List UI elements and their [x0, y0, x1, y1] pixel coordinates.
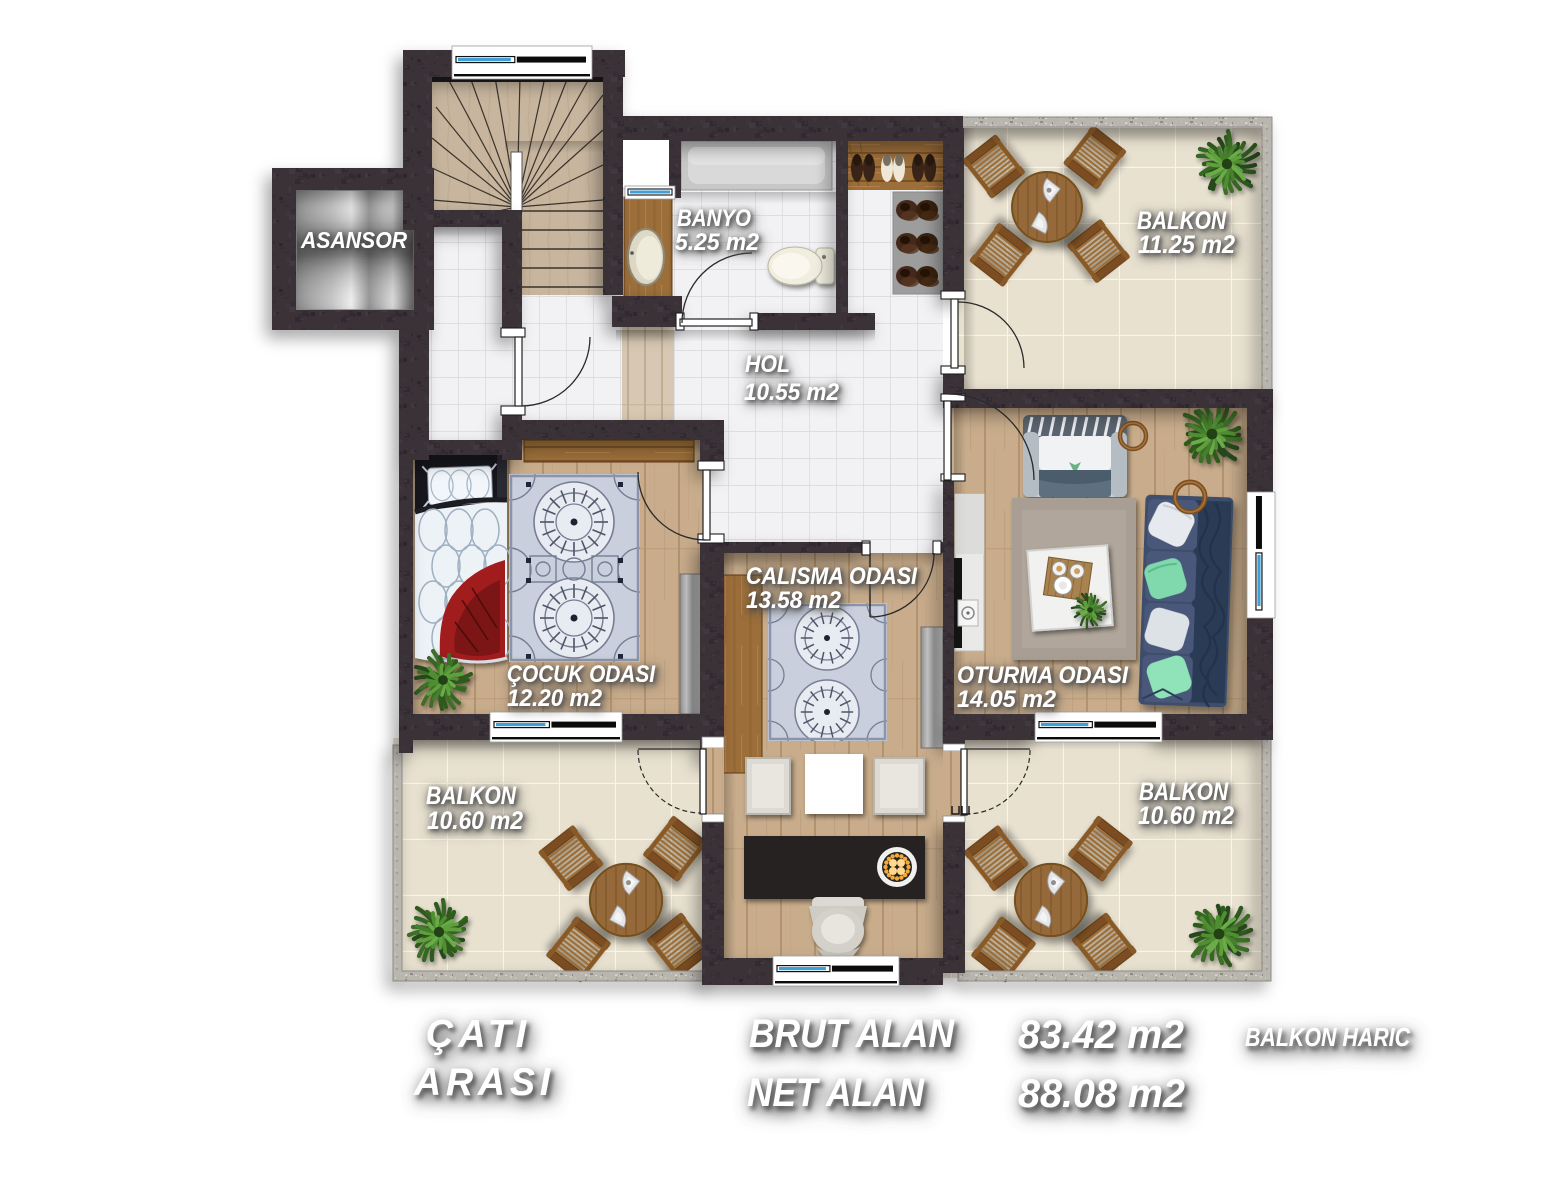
svg-text:NET ALAN: NET ALAN [747, 1071, 925, 1115]
svg-text:83.42 m2: 83.42 m2 [1018, 1013, 1184, 1057]
svg-text:5.25 m2: 5.25 m2 [675, 229, 760, 256]
svg-text:HOL: HOL [745, 351, 790, 378]
svg-text:11.25 m2: 11.25 m2 [1138, 231, 1235, 259]
svg-text:13.58 m2: 13.58 m2 [746, 587, 842, 614]
svg-text:ÇATI: ÇATI [426, 1013, 531, 1056]
svg-text:10.55 m2: 10.55 m2 [744, 379, 840, 406]
svg-text:ARASI: ARASI [413, 1061, 555, 1104]
svg-text:12.20 m2: 12.20 m2 [507, 685, 603, 712]
svg-text:BRUT ALAN: BRUT ALAN [749, 1012, 955, 1056]
svg-text:ÇOCUK ODASI: ÇOCUK ODASI [507, 661, 656, 688]
svg-text:88.08 m2: 88.08 m2 [1018, 1072, 1185, 1116]
svg-text:BALKON HARIC: BALKON HARIC [1245, 1022, 1411, 1052]
svg-text:10.60 m2: 10.60 m2 [1138, 802, 1234, 830]
svg-text:BALKON: BALKON [426, 782, 517, 810]
svg-text:14.05 m2: 14.05 m2 [957, 686, 1057, 713]
svg-text:BANYO: BANYO [677, 205, 751, 232]
svg-text:ASANSOR: ASANSOR [300, 227, 407, 253]
svg-text:CALISMA ODASI: CALISMA ODASI [746, 563, 918, 590]
svg-text:10.60 m2: 10.60 m2 [427, 807, 523, 835]
svg-text:OTURMA ODASI: OTURMA ODASI [957, 662, 1129, 689]
